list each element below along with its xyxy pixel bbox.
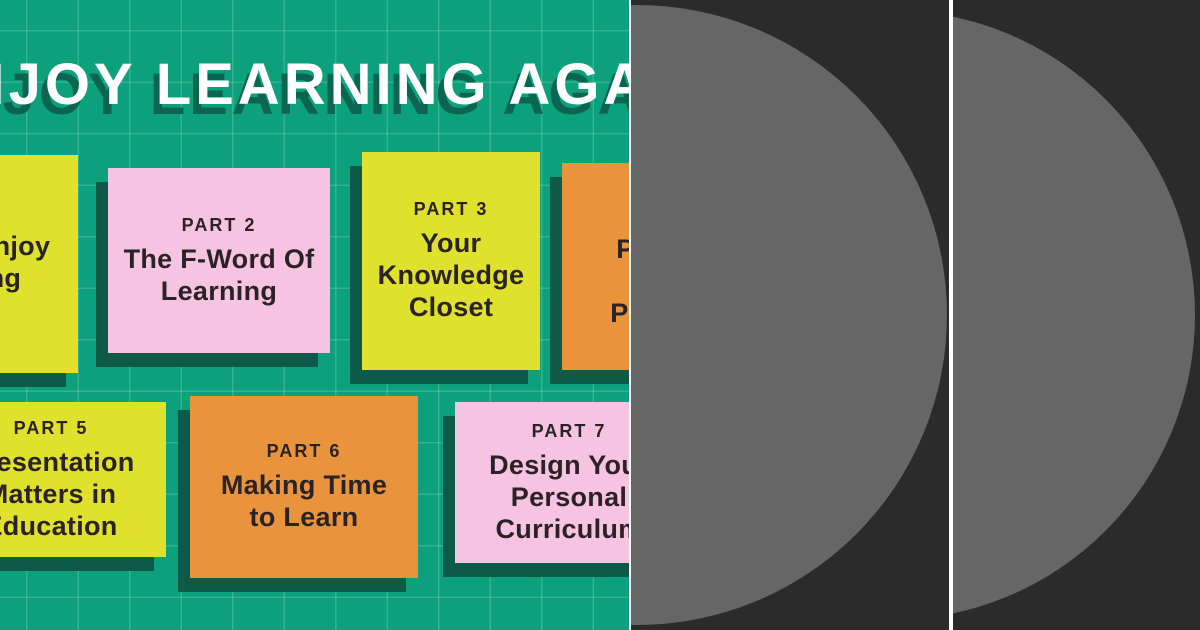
part-4-title-line: Practice: [616, 233, 629, 265]
part-2-title-line: Learning: [161, 275, 277, 307]
social-card-image: ENJOY LEARNING AGAIN PART 1 How to Enjoy…: [0, 0, 1200, 630]
card-part-3: PART 3 Your Knowledge Closet: [362, 152, 540, 370]
circle-graphic: [631, 5, 947, 625]
part-1-title-line: How to Enjoy: [0, 230, 50, 262]
card-part-2: PART 2 The F-Word Of Learning: [108, 168, 330, 353]
part-3-title-line: Knowledge: [378, 259, 525, 291]
part-1-title-line: Again: [0, 294, 1, 326]
part-3-title-line: Closet: [409, 291, 493, 323]
part-5-title-line: Education: [0, 510, 118, 542]
card-part-1: PART 1 How to Enjoy Learning Again: [0, 155, 78, 373]
card-part-5: PART 5 Presentation Matters in Education: [0, 402, 166, 557]
part-1-title-line: Learning: [0, 262, 21, 294]
dark-panel-1: [631, 0, 949, 630]
part-7-label: PART 7: [532, 421, 607, 442]
part-5-label: PART 5: [14, 418, 89, 439]
infographic-panel: ENJOY LEARNING AGAIN PART 1 How to Enjoy…: [0, 0, 629, 630]
part-6-title-line: to Learn: [250, 501, 359, 533]
card-part-6: PART 6 Making Time to Learn: [190, 396, 418, 578]
part-6-title-line: Making Time: [221, 469, 387, 501]
dark-panel-2: [953, 0, 1200, 630]
part-2-title-line: The F-Word Of: [124, 243, 315, 275]
circle-graphic: [953, 10, 1195, 620]
page-title: ENJOY LEARNING AGAIN: [0, 56, 629, 114]
part-7-title-line: Personal: [511, 481, 627, 513]
card-part-7: PART 7 Design Your Personal Curriculum: [455, 402, 629, 563]
part-3-label: PART 3: [414, 199, 489, 220]
part-3-title-line: Your: [421, 227, 482, 259]
part-5-title-line: Presentation: [0, 446, 135, 478]
part-6-label: PART 6: [267, 441, 342, 462]
card-part-4: PART 4 Practice Makes Progress: [562, 163, 629, 370]
part-7-title-line: Curriculum: [495, 513, 629, 545]
part-2-label: PART 2: [182, 215, 257, 236]
part-5-title-line: Matters in: [0, 478, 116, 510]
part-7-title-line: Design Your: [489, 449, 629, 481]
part-4-title-line: Progress: [610, 297, 629, 329]
